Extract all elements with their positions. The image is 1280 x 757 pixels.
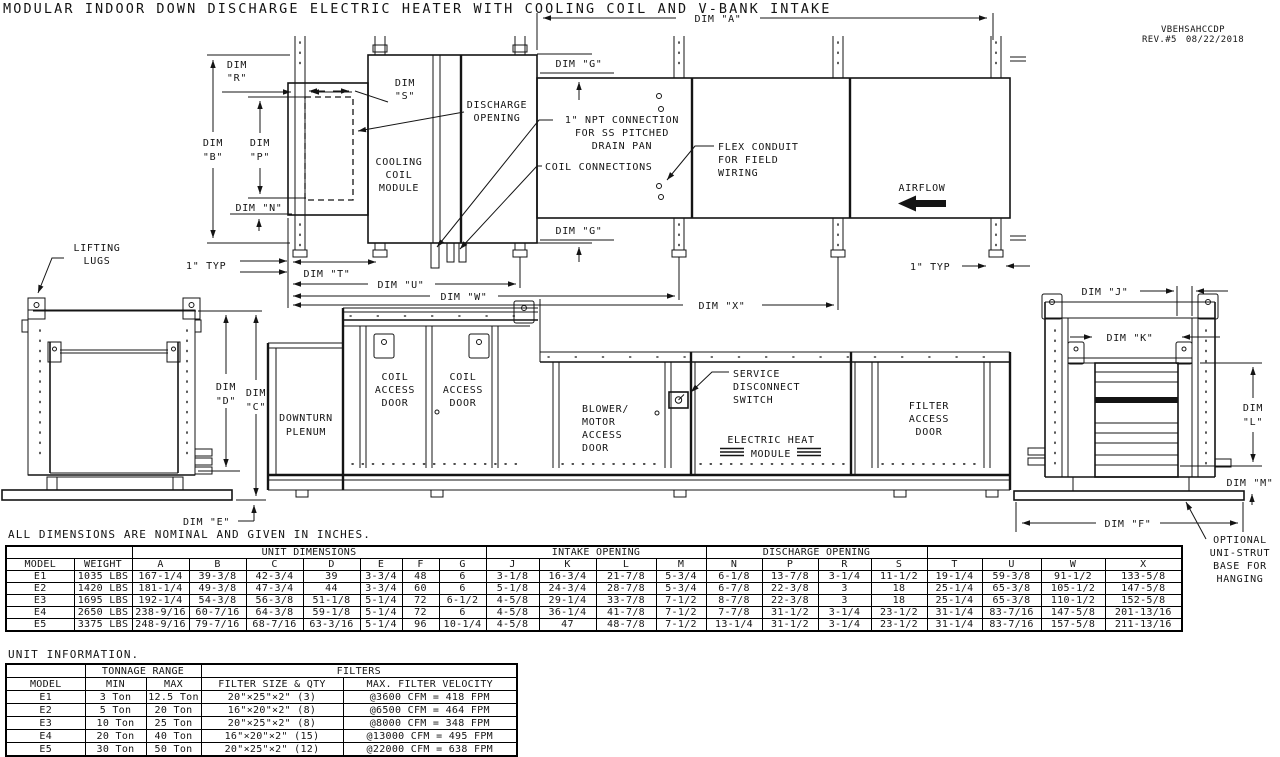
table-cell: 6-1/8 [706,571,762,583]
table-cell: 72 [402,607,439,619]
table-cell: E1 [6,691,85,704]
table-cell: 41-7/8 [596,607,656,619]
column-header: J [486,559,539,571]
table-cell: 31-1/2 [762,619,818,632]
dim-g-bottom-dimension: DIM "G" [537,226,614,262]
lifting-lug [28,298,45,319]
conduit-hole [657,184,662,189]
svg-text:SWITCH: SWITCH [733,395,773,406]
table-cell: 47 [539,619,596,632]
column-header: FILTER SIZE & QTY [201,678,343,691]
table-cell: 60 [402,583,439,595]
svg-text:FOR SS PITCHED: FOR SS PITCHED [575,128,669,139]
conduit-hole [657,94,662,99]
column-header: N [706,559,762,571]
svg-text:DIM "G": DIM "G" [555,59,602,70]
dimensions-note: ALL DIMENSIONS ARE NOMINAL AND GIVEN IN … [8,528,371,541]
table-cell: 238-9/16 [132,607,189,619]
column-header: WEIGHT [74,559,132,571]
table-cell: 91-1/2 [1041,571,1105,583]
dim-c-dimension: DIM "C" [236,315,266,500]
table-cell: 167-1/4 [132,571,189,583]
svg-text:MODULE: MODULE [751,449,791,460]
table-cell: 21-7/8 [596,571,656,583]
column-header: E [360,559,402,571]
svg-text:DIM: DIM [1243,403,1263,414]
coil-access-door-label: COIL [382,372,409,383]
table-cell: 5-3/4 [656,583,706,595]
coil-access-door-label: COIL [450,372,477,383]
table-cell: E1 [6,571,74,583]
lifting-lug [1068,342,1084,364]
svg-text:WIRING: WIRING [718,168,758,179]
table-cell: 1035 LBS [74,571,132,583]
svg-text:FILTER: FILTER [909,401,950,412]
table-cell: @22000 CFM = 638 FPM [343,743,517,757]
table-cell: 5-1/8 [486,583,539,595]
table-cell: 22-3/8 [762,583,818,595]
svg-text:OPENING: OPENING [473,113,520,124]
table-cell: 20"×25"×2" (3) [201,691,343,704]
blank-cell [6,546,132,559]
column-header: L [596,559,656,571]
plan-view: COOLING COIL MODULE AIRFLOW DIM "A" [186,13,1030,312]
svg-text:"P": "P" [250,152,270,163]
table-cell: 1695 LBS [74,595,132,607]
table-cell: 3-1/4 [818,619,871,632]
table-cell: 65-3/8 [982,583,1041,595]
table-cell: 211-13/16 [1105,619,1182,632]
table-cell: E5 [6,619,74,632]
table-cell: 48 [402,571,439,583]
one-inch-typ-right: 1" TYP [910,262,1030,273]
column-header: MODEL [6,678,85,691]
svg-text:DIM "A": DIM "A" [694,14,741,25]
table-cell: 24-3/4 [539,583,596,595]
svg-text:DIM: DIM [250,138,270,149]
group-header-intake-opening: INTAKE OPENING [486,546,706,559]
svg-text:"C": "C" [246,402,266,413]
column-header: MAX. FILTER VELOCITY [343,678,517,691]
table-cell: 30 Ton [85,743,146,757]
coil-stub [1028,448,1045,455]
table-cell: 25-1/4 [927,583,982,595]
plan-discharge-opening [305,97,353,200]
service-disconnect-callout: SERVICE DISCONNECT SWITCH [691,369,800,406]
door-latch [435,410,439,414]
airflow-arrow-icon [898,196,946,212]
dim-e-dimension: DIM "E" [183,505,254,528]
table-cell: 25 Ton [146,717,201,730]
svg-text:BLOWER/: BLOWER/ [582,404,629,415]
table-cell: 1420 LBS [74,583,132,595]
table-cell: 31-1/4 [927,619,982,632]
coil-stub [195,458,212,465]
svg-text:ACCESS: ACCESS [582,430,622,441]
blank-cell [6,664,85,678]
cooling-coil-module-label: COOLING [375,157,422,168]
table-cell: 3-1/8 [486,571,539,583]
table-cell: 42-3/4 [246,571,303,583]
table-cell: 68-7/16 [246,619,303,632]
dim-r-dimension: DIM "R" [222,60,352,92]
table-cell: 59-1/8 [303,607,360,619]
table-cell: 96 [402,619,439,632]
unit-foot [296,490,308,497]
svg-text:UNI-STRUT: UNI-STRUT [1210,548,1271,559]
table-cell: 83-7/16 [982,619,1041,632]
column-header: S [871,559,927,571]
table-row: E530 Ton50 Ton20"×25"×2" (12)@22000 CFM … [6,743,517,757]
table-cell: 133-5/8 [1105,571,1182,583]
column-header: C [246,559,303,571]
svg-text:MODULE: MODULE [379,183,419,194]
table-cell: 3375 LBS [74,619,132,632]
svg-text:DIM "G": DIM "G" [555,226,602,237]
table-cell: E4 [6,607,74,619]
unit-foot [986,490,998,497]
table-cell: 83-7/16 [982,607,1041,619]
group-header-unit-dimensions: UNIT DIMENSIONS [132,546,486,559]
column-header: A [132,559,189,571]
column-header: U [982,559,1041,571]
table-cell: 6 [439,583,486,595]
discharge-opening-callout: DISCHARGE OPENING [358,100,527,131]
dim-w-dimension: DIM "W" [293,257,679,303]
table-cell: 6 [439,607,486,619]
table-cell: 60-7/16 [189,607,246,619]
main-elevation [268,299,1010,497]
left-end-view [2,298,232,500]
blank-cell [927,546,1182,559]
table-cell: 3 Ton [85,691,146,704]
unit-foot [894,490,906,497]
table-row: E53375 LBS248-9/1679-7/1668-7/1663-3/165… [6,619,1182,632]
svg-text:DIM: DIM [216,382,236,393]
column-header: MODEL [6,559,74,571]
svg-text:FLEX CONDUIT: FLEX CONDUIT [718,142,799,153]
table-cell: 56-3/8 [246,595,303,607]
table-cell: 7-1/2 [656,595,706,607]
table-cell: 157-5/8 [1041,619,1105,632]
unistrut-callout: OPTIONAL UNI-STRUT BASE FOR HANGING [1186,502,1270,585]
column-header: D [303,559,360,571]
table-cell: 23-1/2 [871,619,927,632]
table-cell: 49-3/8 [189,583,246,595]
group-header-row: UNIT DIMENSIONS INTAKE OPENING DISCHARGE… [6,546,1182,559]
svg-text:DIM "E": DIM "E" [183,517,230,528]
svg-text:"B": "B" [203,152,223,163]
table-cell: 6-1/2 [439,595,486,607]
dim-x-dimension: DIM "X" [293,257,838,312]
table-cell: 147-5/8 [1041,607,1105,619]
table-cell: 20"×25"×2" (12) [201,743,343,757]
table-cell: E2 [6,704,85,717]
dim-n-dimension: DIM "N" [230,203,292,231]
table-cell: 3-3/4 [360,583,402,595]
svg-text:DISCHARGE: DISCHARGE [467,100,528,111]
svg-text:"D": "D" [216,396,236,407]
svg-text:DOOR: DOOR [382,398,409,409]
table-cell: 31-1/2 [762,607,818,619]
table-cell: 4-5/8 [486,595,539,607]
table-row: E42650 LBS238-9/1660-7/1664-3/859-1/85-1… [6,607,1182,619]
column-header-row: MODEL WEIGHT A B C D E F G J K L M N P R… [6,559,1182,571]
table-cell: 36-1/4 [539,607,596,619]
table-cell: 248-9/16 [132,619,189,632]
unit-foot [431,490,443,497]
table-cell: 51-1/8 [303,595,360,607]
table-cell: 63-3/16 [303,619,360,632]
lifting-lug [1176,342,1192,364]
group-header-row: TONNAGE RANGE FILTERS [6,664,517,678]
svg-text:LUGS: LUGS [84,256,111,267]
table-cell: 64-3/8 [246,607,303,619]
table-cell: 3-1/4 [818,571,871,583]
svg-text:MOTOR: MOTOR [582,417,616,428]
table-cell: 5-1/4 [360,595,402,607]
svg-text:DIM "N": DIM "N" [235,203,282,214]
table-cell: 22-3/8 [762,595,818,607]
svg-text:DIM "X": DIM "X" [698,301,745,312]
door-latch [655,411,659,415]
table-cell: 147-5/8 [1105,583,1182,595]
svg-text:DIM "F": DIM "F" [1104,519,1151,530]
table-cell: E4 [6,730,85,743]
table-cell: 201-13/16 [1105,607,1182,619]
column-header-row: MODEL MIN MAX FILTER SIZE & QTY MAX. FIL… [6,678,517,691]
table-cell: 33-7/8 [596,595,656,607]
svg-text:DIM "T": DIM "T" [303,269,350,280]
table-cell: @3600 CFM = 418 FPM [343,691,517,704]
svg-text:FOR FIELD: FOR FIELD [718,155,779,166]
table-cell: 2650 LBS [74,607,132,619]
downturn-plenum-label: DOWNTURN [279,413,333,424]
svg-text:"L": "L" [1243,417,1263,428]
table-cell: 20 Ton [85,730,146,743]
table-cell: 105-1/2 [1041,583,1105,595]
table-cell: 47-3/4 [246,583,303,595]
table-cell: E3 [6,595,74,607]
table-cell: 3 [818,595,871,607]
table-cell: 59-3/8 [982,571,1041,583]
svg-text:DIM: DIM [246,388,266,399]
svg-text:DIM "W": DIM "W" [440,292,487,303]
column-header: K [539,559,596,571]
blower-motor-access-door-label: BLOWER/ MOTOR ACCESS DOOR [582,404,629,454]
table-cell: 8-7/8 [706,595,762,607]
column-header: MAX [146,678,201,691]
table-row: E310 Ton25 Ton20"×25"×2" (8)@8000 CFM = … [6,717,517,730]
svg-text:ACCESS: ACCESS [443,385,483,396]
lifting-lug [374,334,394,358]
table-cell: 18 [871,583,927,595]
svg-text:HANGING: HANGING [1216,574,1263,585]
table-cell: 40 Ton [146,730,201,743]
table-cell: 18 [871,595,927,607]
table-cell: 7-1/2 [656,607,706,619]
table-cell: 25-1/4 [927,595,982,607]
table-cell: 6 [439,571,486,583]
table-cell: 110-1/2 [1041,595,1105,607]
right-end-view [1014,294,1244,500]
table-cell: 39 [303,571,360,583]
table-row: E31695 LBS192-1/454-3/856-3/851-1/85-1/4… [6,595,1182,607]
column-header: F [402,559,439,571]
table-cell: 28-7/8 [596,583,656,595]
unit-information-table: TONNAGE RANGE FILTERS MODEL MIN MAX FILT… [5,663,518,757]
table-cell: 5-3/4 [656,571,706,583]
dim-g-top-dimension: DIM "G" [537,54,614,100]
conduit-hole [659,195,664,200]
dim-s-dimension: DIM "S" [309,78,415,102]
table-cell: 12.5 Ton [146,691,201,704]
floor-plate [2,490,232,500]
dim-f-dimension: DIM "F" [1016,502,1243,532]
lifting-lugs-callout: LIFTING LUGS [38,243,121,293]
table-cell: 4-5/8 [486,607,539,619]
table-cell: 6-7/8 [706,583,762,595]
svg-text:DIM "U": DIM "U" [377,280,424,291]
table-cell: 39-3/8 [189,571,246,583]
table-cell: E5 [6,743,85,757]
svg-text:DIM: DIM [203,138,223,149]
table-cell: 181-1/4 [132,583,189,595]
svg-text:"S": "S" [395,91,415,102]
svg-text:COIL CONNECTIONS: COIL CONNECTIONS [545,162,653,173]
table-cell: 7-1/2 [656,619,706,632]
table-cell: E2 [6,583,74,595]
table-cell: 16"×20"×2" (8) [201,704,343,717]
table-cell: 16"×20"×2" (15) [201,730,343,743]
unit-information-label: UNIT INFORMATION. [8,648,139,661]
table-cell: 20 Ton [146,704,201,717]
dim-t-dimension: DIM "T" [288,218,376,308]
column-header: X [1105,559,1182,571]
svg-text:1" TYP: 1" TYP [910,262,950,273]
svg-text:DOOR: DOOR [916,427,943,438]
svg-text:COIL: COIL [386,170,413,181]
table-row: E420 Ton40 Ton16"×20"×2" (15)@13000 CFM … [6,730,517,743]
table-cell: 152-5/8 [1105,595,1182,607]
drawing-canvas: COOLING COIL MODULE AIRFLOW DIM "A" [0,0,1280,752]
column-header: R [818,559,871,571]
table-cell: 16-3/4 [539,571,596,583]
table-cell: 3-3/4 [360,571,402,583]
table-cell: 19-1/4 [927,571,982,583]
base-channel [1073,477,1189,491]
column-header: B [189,559,246,571]
table-cell: 29-1/4 [539,595,596,607]
table-row: E25 Ton20 Ton16"×20"×2" (8)@6500 CFM = 4… [6,704,517,717]
table-cell: 79-7/16 [189,619,246,632]
table-cell: 50 Ton [146,743,201,757]
group-header-filters: FILTERS [201,664,517,678]
table-cell: 192-1/4 [132,595,189,607]
unit-foot [674,490,686,497]
table-cell: @13000 CFM = 495 FPM [343,730,517,743]
coil-stub [195,449,212,456]
svg-text:DIM: DIM [395,78,415,89]
column-header: T [927,559,982,571]
column-header: MIN [85,678,146,691]
conduit-hole [659,107,664,112]
table-cell: 23-1/2 [871,607,927,619]
table-cell: 31-1/4 [927,607,982,619]
column-header: G [439,559,486,571]
svg-text:ACCESS: ACCESS [375,385,415,396]
table-cell: 5-1/4 [360,619,402,632]
svg-text:SERVICE: SERVICE [733,369,780,380]
svg-text:DISCONNECT: DISCONNECT [733,382,800,393]
one-inch-typ-left: 1" TYP [186,261,287,272]
table-cell: 7-7/8 [706,607,762,619]
coil-stub [1028,458,1045,465]
svg-text:LIFTING: LIFTING [73,243,120,254]
svg-text:DIM "M": DIM "M" [1226,478,1273,489]
filter-access-door-label: FILTER ACCESS DOOR [909,401,950,438]
table-cell: 10-1/4 [439,619,486,632]
dim-a-dimension: DIM "A" [537,13,993,50]
column-header: W [1041,559,1105,571]
table-cell: 5-1/4 [360,607,402,619]
table-cell: 20"×25"×2" (8) [201,717,343,730]
table-cell: 11-1/2 [871,571,927,583]
svg-text:ACCESS: ACCESS [909,414,949,425]
table-cell: 13-1/4 [706,619,762,632]
table-cell: 3 [818,583,871,595]
table-cell: 10 Ton [85,717,146,730]
table-cell: 65-3/8 [982,595,1041,607]
unit-dimensions-table: UNIT DIMENSIONS INTAKE OPENING DISCHARGE… [5,545,1183,632]
flex-conduit-callout: FLEX CONDUIT FOR FIELD WIRING [667,142,799,180]
v-bank-filter [1095,363,1178,477]
table-cell: 3-1/4 [818,607,871,619]
table-cell: @6500 CFM = 464 FPM [343,704,517,717]
coil-stub [447,243,454,262]
table-cell: @8000 CFM = 348 FPM [343,717,517,730]
table-row: E11035 LBS167-1/439-3/842-3/4393-3/44863… [6,571,1182,583]
svg-text:DIM "J": DIM "J" [1081,287,1128,298]
svg-text:PLENUM: PLENUM [286,427,326,438]
svg-text:DOOR: DOOR [450,398,477,409]
group-header-discharge-opening: DISCHARGE OPENING [706,546,927,559]
lifting-lug [469,334,489,358]
table-cell: 48-7/8 [596,619,656,632]
svg-text:DIM "K": DIM "K" [1106,333,1153,344]
table-cell: 44 [303,583,360,595]
table-cell: E3 [6,717,85,730]
column-header: M [656,559,706,571]
svg-text:1" TYP: 1" TYP [186,261,226,272]
base-channel [47,477,183,490]
svg-text:OPTIONAL: OPTIONAL [1213,535,1267,546]
svg-text:DRAIN PAN: DRAIN PAN [592,141,653,152]
airflow-label: AIRFLOW [898,183,945,194]
table-cell: 13-7/8 [762,571,818,583]
table-cell: 4-5/8 [486,619,539,632]
svg-text:DIM: DIM [227,60,247,71]
table-cell: 72 [402,595,439,607]
table-row: E13 Ton12.5 Ton20"×25"×2" (3)@3600 CFM =… [6,691,517,704]
electric-heat-module-label: ELECTRIC HEAT [727,435,814,446]
svg-text:"R": "R" [227,73,247,84]
svg-text:BASE FOR: BASE FOR [1213,561,1267,572]
table-row: E21420 LBS181-1/449-3/847-3/4443-3/46065… [6,583,1182,595]
table-cell: 5 Ton [85,704,146,717]
dim-p-dimension: DIM "P" [248,97,306,198]
plan-downturn-plenum [288,83,368,215]
